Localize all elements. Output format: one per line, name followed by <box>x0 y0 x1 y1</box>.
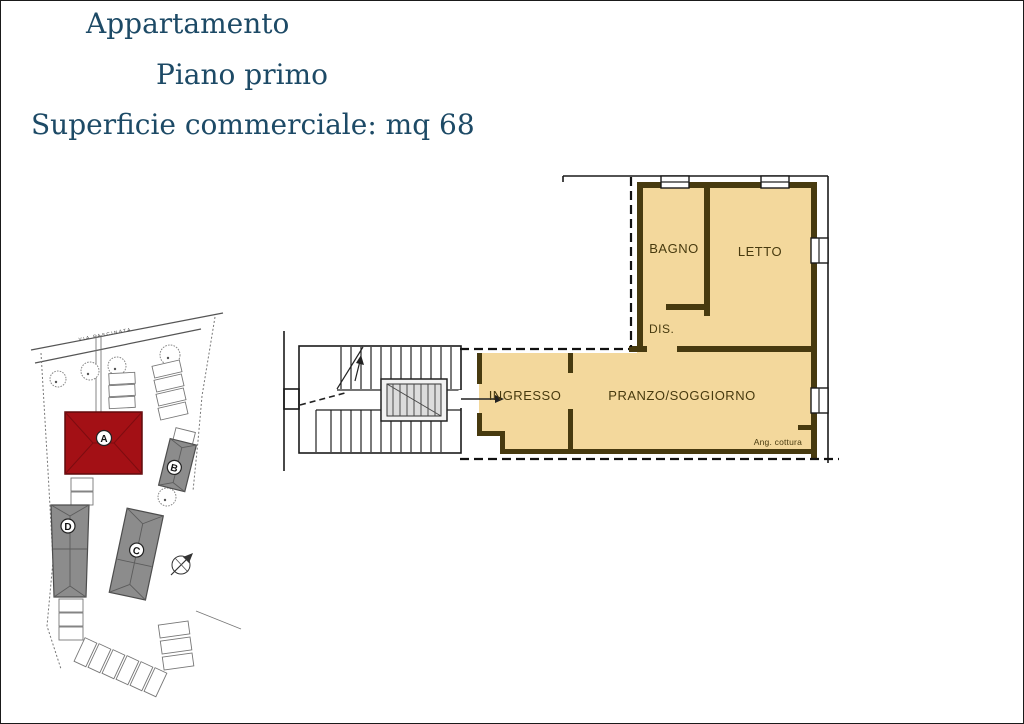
building-d: D <box>51 505 89 597</box>
elevator-icon <box>381 379 447 421</box>
floor-subtitle: Piano primo <box>156 58 328 91</box>
page-title: Appartamento <box>86 7 289 40</box>
stairwell <box>299 346 464 453</box>
building-b: B <box>159 427 200 492</box>
building-a-label: A <box>100 434 107 445</box>
room-label-ang-cottura: Ang. cottura <box>754 437 802 447</box>
floor-fill <box>479 182 817 453</box>
parking-mid <box>71 478 93 505</box>
site-plan: VIA FASCINATA <box>23 306 243 706</box>
room-label-bagno: BAGNO <box>649 241 698 256</box>
building-c: C <box>109 508 163 600</box>
floor-plan: BAGNO LETTO DIS. INGRESSO PRANZO/SOGGIOR… <box>279 151 844 471</box>
room-label-ingresso: INGRESSO <box>489 388 562 403</box>
building-a: A <box>65 412 142 474</box>
brochure-page: Appartamento Piano primo Superficie comm… <box>0 0 1024 724</box>
room-label-letto: LETTO <box>738 244 782 259</box>
room-label-dis: DIS. <box>649 322 674 336</box>
building-d-label: D <box>64 522 71 533</box>
room-label-pranzo-soggiorno: PRANZO/SOGGIORNO <box>608 388 755 403</box>
surface-line: Superficie commerciale: mq 68 <box>31 108 475 141</box>
stair-direction-arrow-icon <box>355 355 364 381</box>
street-label: VIA FASCINATA <box>78 327 132 342</box>
street: VIA FASCINATA <box>31 313 223 363</box>
compass-icon <box>171 553 193 575</box>
parking-bottom <box>59 599 241 697</box>
